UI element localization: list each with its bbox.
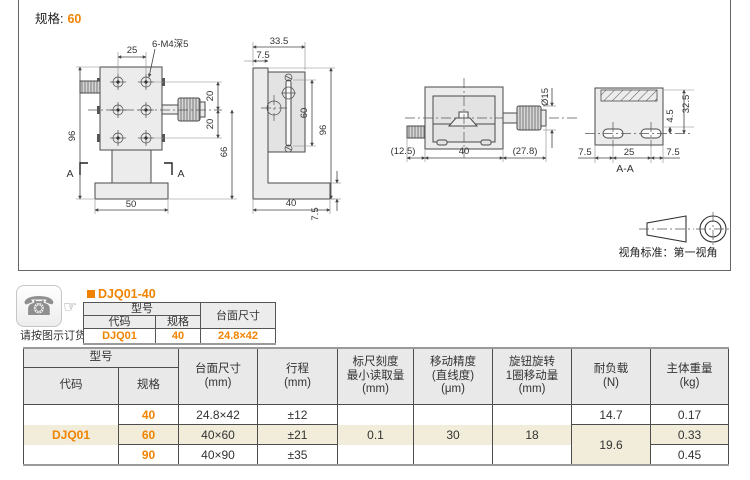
dim-label: 7.5 [578,147,591,158]
dim-label: (12.5) [391,146,416,157]
scale-cell: 0.1 [338,405,414,466]
header-spec: 规格 [119,368,179,405]
dim-label: 66 [219,147,230,158]
header-scale: 标尺刻度 最小读取量 (mm) [338,348,414,405]
per-turn-cell: 18 [493,405,572,466]
accuracy-cell: 30 [414,405,493,466]
dim-label: 25 [624,147,635,158]
header-load: 耐负载 (N) [572,348,651,405]
dim-label: 32.5 [681,95,692,114]
dim-label: 7.5 [310,207,321,220]
front-view: 25 6-M4深5 96 20 20 66 50 A A [66,39,237,214]
header-code: 代码 [24,368,119,405]
order-mini-table: 型号 台面尺寸 代码 规格 DJQ01 40 24.8×42 [83,302,276,345]
travel-cell: ±21 [258,425,338,445]
mini-header-size: 台面尺寸 [201,303,276,329]
section-mark: A [66,168,73,180]
section-view: 4.5 32.5 7.5 25 7.5 A-A [578,88,694,175]
header-model: 型号 [24,348,179,368]
table-row: DJQ01 40 24.8×42 ±12 0.1 30 18 14.7 0.17 [24,405,729,425]
dim-label: 20 [205,119,216,130]
mini-size-value: 24.8×42 [201,329,276,345]
header-weight: 主体重量 (kg) [651,348,729,405]
dim-label: 4.5 [665,109,676,122]
dim-label: 33.5 [270,36,289,47]
dim-label: 96 [318,125,329,136]
dim-label: 20 [205,91,216,102]
dim-label: 7.5 [666,147,679,158]
pointing-hand-icon: ☞ [63,297,77,317]
header-per-turn: 旋钮旋转 1圈移动量 (mm) [493,348,572,405]
mini-header-code: 代码 [84,316,156,329]
mini-header-spec: 规格 [156,316,201,329]
top-view: Ø15 (12.5) 40 (27.8) [391,78,577,162]
size-cell: 40×60 [179,425,258,445]
engineering-drawing: 25 6-M4深5 96 20 20 66 50 A A [0,0,750,271]
weight-cell: 0.17 [651,405,729,425]
dim-label: (27.8) [513,146,538,157]
weight-cell: 0.33 [651,425,729,445]
size-cell: 40×90 [179,445,258,466]
load-cell: 19.6 [572,425,651,466]
phone-icon: ☎ [23,293,55,319]
dim-label: Ø15 [540,88,551,106]
section-label: A-A [616,163,634,175]
side-view: 33.5 7.5 60 96 40 7.5 [244,36,341,221]
mini-header-model: 型号 [84,303,201,316]
size-cell: 24.8×42 [179,405,258,425]
product-code: DJQ01-40 [98,287,156,301]
view-standard-note: 视角标准：第一视角 [619,245,718,259]
weight-cell: 0.45 [651,445,729,466]
spec-cell: 40 [119,405,179,425]
dim-label: 40 [286,198,297,209]
thread-note: 6-M4深5 [152,39,188,50]
dim-label: 60 [299,108,310,119]
section-mark: A [177,168,184,180]
spec-table: 型号 台面尺寸 (mm) 行程 (mm) 标尺刻度 最小读取量 (mm) 移动精… [23,347,729,466]
bullet-square-icon [87,290,95,298]
product-heading: DJQ01-40 [87,287,156,301]
travel-cell: ±35 [258,445,338,466]
mini-code-value: DJQ01 [84,329,156,345]
mini-spec-value: 40 [156,329,201,345]
first-angle-symbol: 视角标准：第一视角 [619,212,731,259]
dim-label: 40 [459,146,470,157]
dim-label: 7.5 [256,50,269,61]
code-cell: DJQ01 [24,405,119,466]
catalog-page: 规格:60 [0,0,750,480]
load-cell: 14.7 [572,405,651,425]
dim-label: 25 [127,45,138,56]
travel-cell: ±12 [258,405,338,425]
header-travel: 行程 (mm) [258,348,338,405]
spec-cell: 60 [119,425,179,445]
header-accuracy: 移动精度 (直线度) (μm) [414,348,493,405]
dim-label: 96 [67,131,78,142]
spec-cell: 90 [119,445,179,466]
order-phone-badge: ☎ [16,285,62,327]
header-table-size: 台面尺寸 (mm) [179,348,258,405]
dim-label: 50 [126,199,137,210]
mini-value-row: DJQ01 40 24.8×42 [84,329,276,345]
